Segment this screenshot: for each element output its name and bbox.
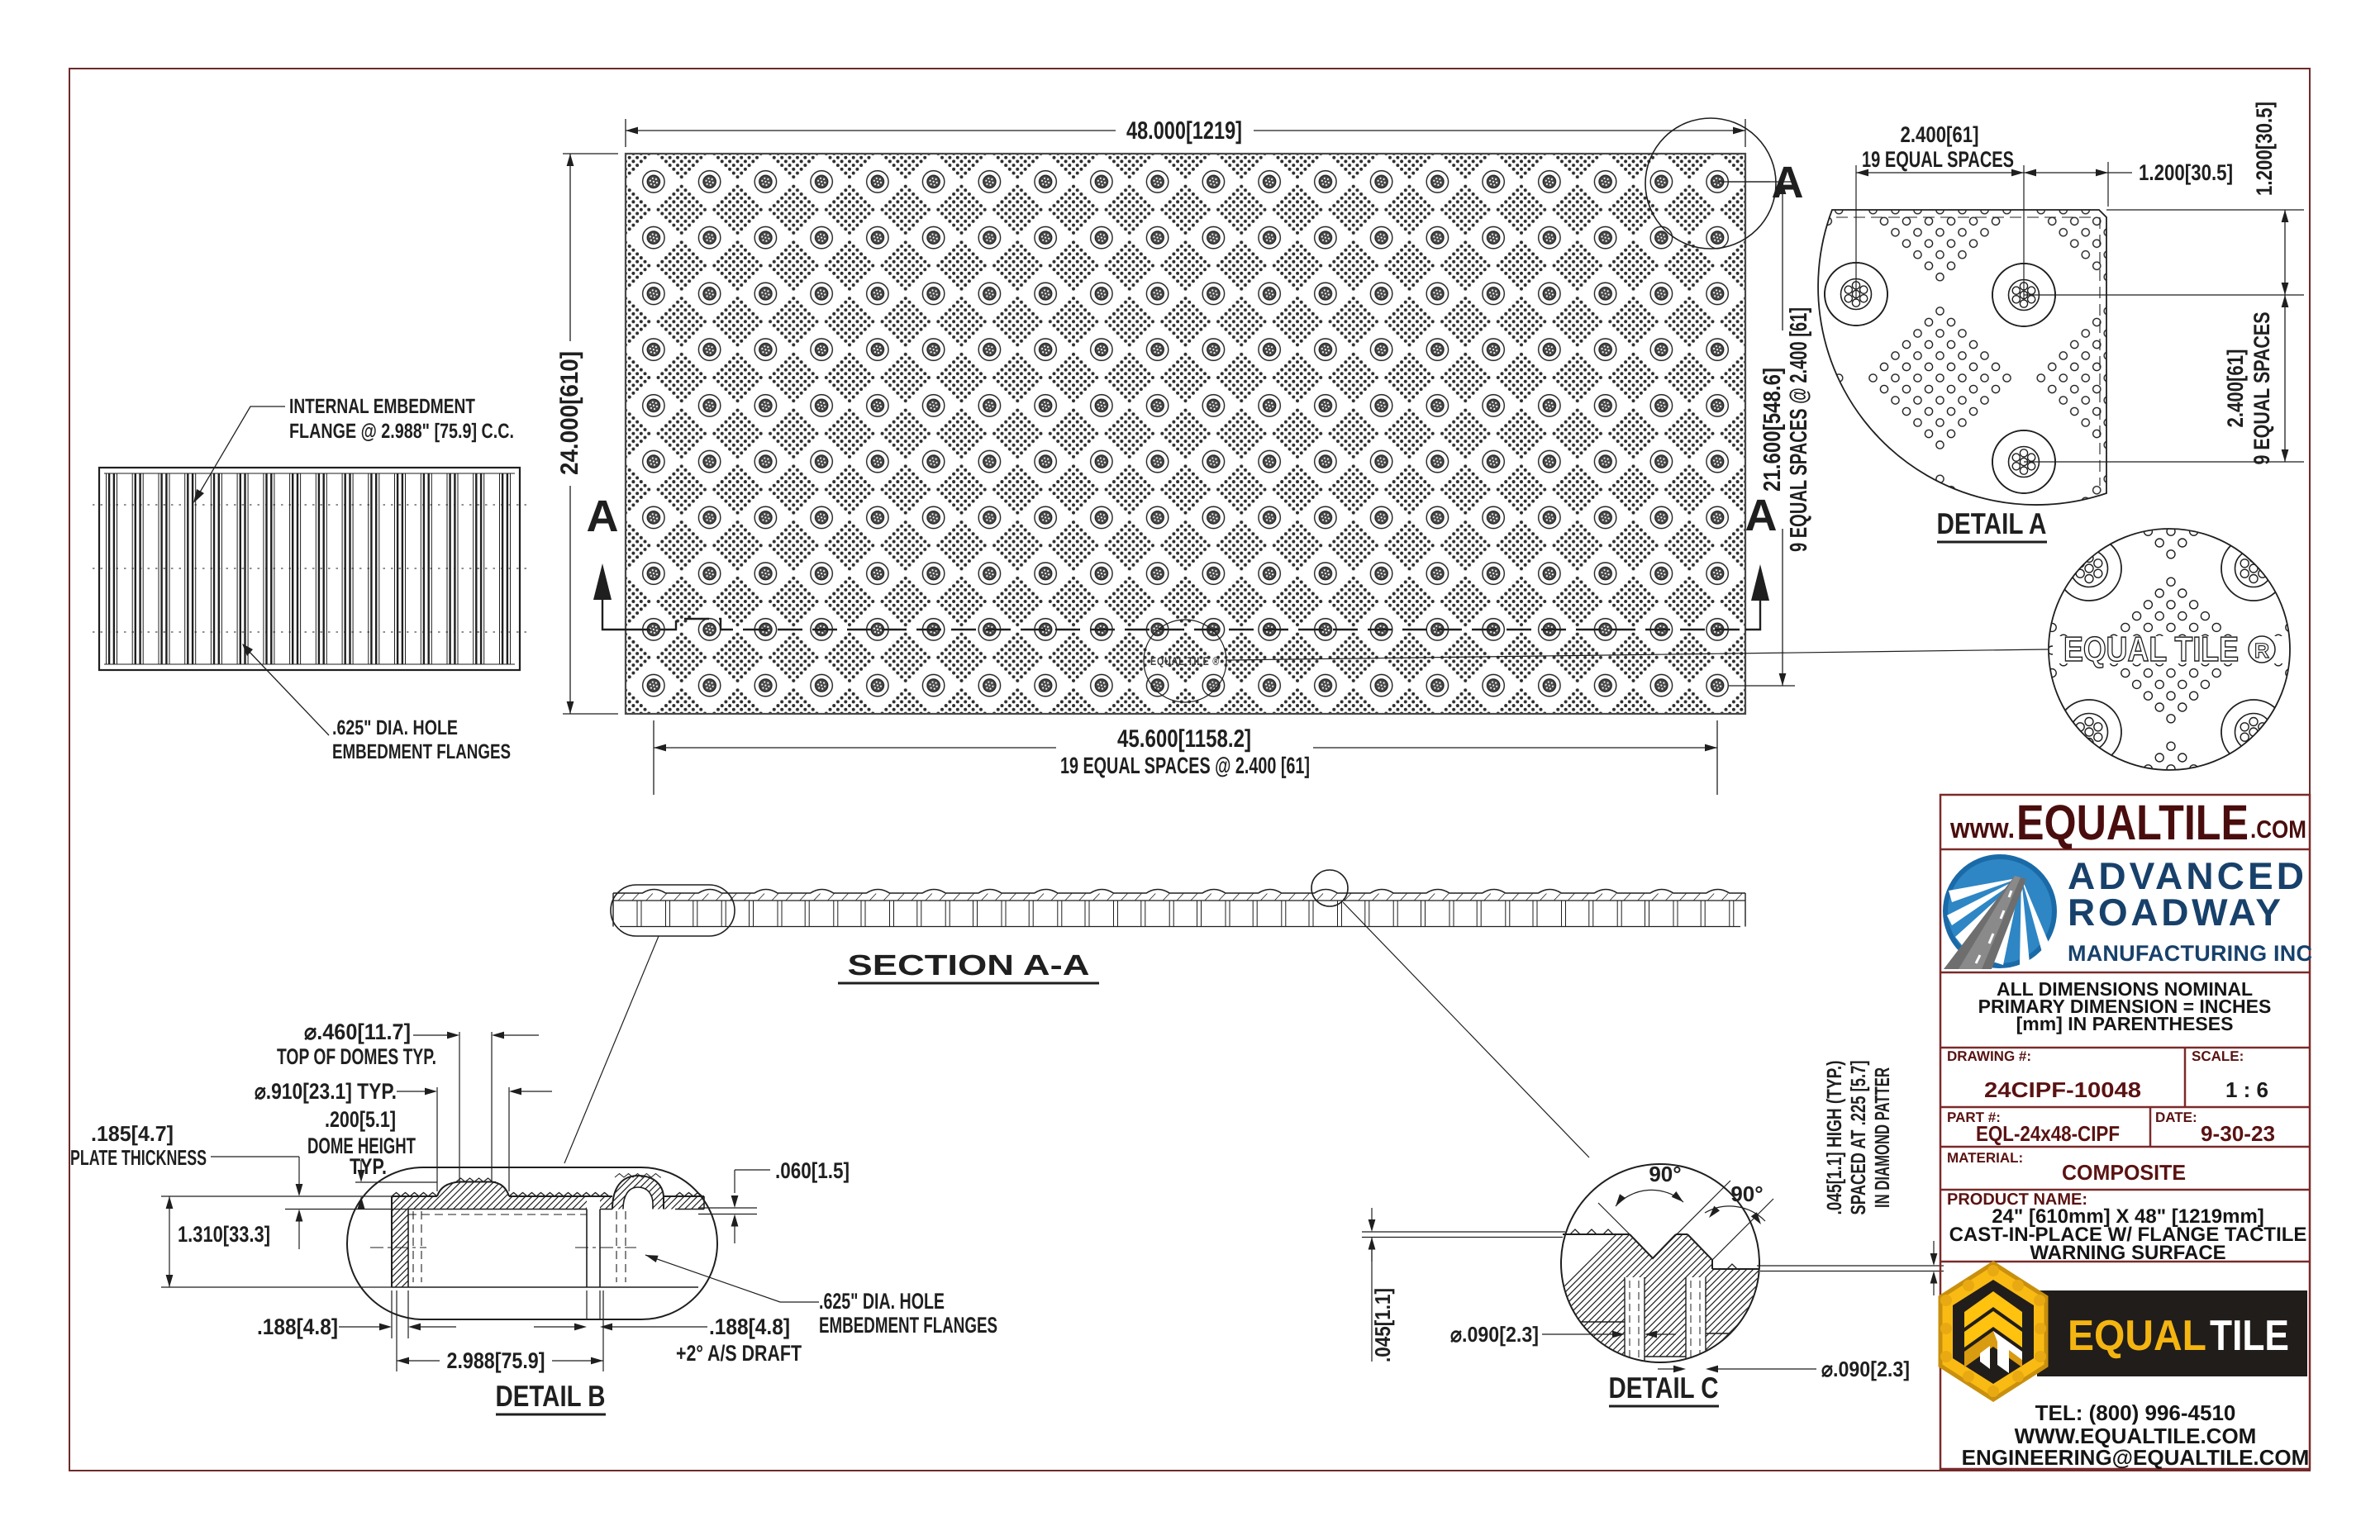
svg-text:⌀.090[2.3]: ⌀.090[2.3] <box>1821 1357 1910 1381</box>
svg-text:2.988[75.9]: 2.988[75.9] <box>447 1348 545 1373</box>
svg-text:EQUALTILE: EQUALTILE <box>2016 795 2249 850</box>
svg-text:EQUAL TILE ®: EQUAL TILE ® <box>1150 654 1220 668</box>
svg-text:48.000[1219]: 48.000[1219] <box>1126 117 1242 145</box>
svg-text:2.400[61]: 2.400[61] <box>2223 349 2248 428</box>
svg-text:DRAWING #:: DRAWING #: <box>1947 1048 2031 1064</box>
svg-text:SPACED AT .225 [5.7]: SPACED AT .225 [5.7] <box>1847 1061 1870 1215</box>
svg-text:TYP.: TYP. <box>350 1154 387 1179</box>
svg-text:.045[1.1]: .045[1.1] <box>1370 1288 1395 1362</box>
svg-text:1.310[33.3]: 1.310[33.3] <box>178 1222 270 1247</box>
svg-text:.200[5.1]: .200[5.1] <box>325 1107 396 1132</box>
svg-text:TEL: (800) 996-4510: TEL: (800) 996-4510 <box>2035 1400 2236 1425</box>
svg-text:INTERNAL EMBEDMENT: INTERNAL EMBEDMENT <box>289 395 475 418</box>
svg-text:EQL-24x48-CIPF: EQL-24x48-CIPF <box>1976 1121 2120 1146</box>
svg-text:DETAIL B: DETAIL B <box>496 1379 606 1413</box>
svg-text:90°: 90° <box>1730 1181 1763 1206</box>
svg-text:EQUAL: EQUAL <box>2068 1312 2206 1360</box>
svg-text:19 EQUAL SPACES @ 2.400 [61]: 19 EQUAL SPACES @ 2.400 [61] <box>1060 753 1310 778</box>
svg-text:A: A <box>1745 491 1778 540</box>
svg-text:2.400[61]: 2.400[61] <box>1901 122 1979 147</box>
svg-text:21.600[548.6]: 21.600[548.6] <box>1759 368 1786 492</box>
svg-text:A: A <box>587 492 619 541</box>
svg-text:.188[4.8]: .188[4.8] <box>257 1314 338 1339</box>
svg-text:1.200[30.5]: 1.200[30.5] <box>2139 160 2233 185</box>
svg-text:.188[4.8]: .188[4.8] <box>709 1314 790 1339</box>
svg-text:www.: www. <box>1949 813 2015 844</box>
svg-text:EMBEDMENT FLANGES: EMBEDMENT FLANGES <box>332 740 511 763</box>
svg-text:ROADWAY: ROADWAY <box>2068 891 2281 934</box>
svg-text:.045[1.1] HIGH (TYP.): .045[1.1] HIGH (TYP.) <box>1823 1061 1846 1215</box>
svg-text:⌀.910[23.1] TYP.: ⌀.910[23.1] TYP. <box>255 1079 397 1104</box>
svg-text:IN DIAMOND PATTER: IN DIAMOND PATTER <box>1871 1067 1894 1208</box>
svg-text:1 : 6: 1 : 6 <box>2225 1077 2268 1102</box>
svg-text:EQUAL TILE: EQUAL TILE <box>2063 630 2239 668</box>
svg-text:45.600[1158.2]: 45.600[1158.2] <box>1117 725 1251 753</box>
svg-text:TOP OF DOMES TYP.: TOP OF DOMES TYP. <box>277 1044 436 1069</box>
svg-text:DATE:: DATE: <box>2155 1110 2197 1125</box>
svg-text:A: A <box>1772 158 1804 207</box>
svg-text:⌀.090[2.3]: ⌀.090[2.3] <box>1450 1322 1539 1347</box>
svg-text:.625" DIA. HOLE: .625" DIA. HOLE <box>819 1289 945 1314</box>
svg-text:DETAIL A: DETAIL A <box>1937 506 2047 540</box>
svg-text:.185[4.7]: .185[4.7] <box>91 1121 174 1146</box>
svg-text:PLATE THICKNESS: PLATE THICKNESS <box>70 1145 207 1170</box>
svg-text:[mm] IN PARENTHESES: [mm] IN PARENTHESES <box>2016 1013 2234 1034</box>
svg-text:FLANGE @ 2.988" [75.9] C.C.: FLANGE @ 2.988" [75.9] C.C. <box>289 420 514 443</box>
svg-text:SECTION A-A: SECTION A-A <box>848 949 1090 982</box>
svg-text:9 EQUAL SPACES: 9 EQUAL SPACES <box>2249 312 2274 465</box>
svg-text:.060[1.5]: .060[1.5] <box>775 1158 850 1183</box>
svg-text:19 EQUAL SPACES: 19 EQUAL SPACES <box>1862 147 2014 172</box>
svg-text:R: R <box>2254 639 2269 663</box>
svg-text:9 EQUAL SPACES @ 2.400 [61]: 9 EQUAL SPACES @ 2.400 [61] <box>1786 307 1812 552</box>
svg-text:.COM: .COM <box>2250 816 2306 844</box>
svg-text:1.200[30.5]: 1.200[30.5] <box>2252 102 2277 196</box>
svg-text:9-30-23: 9-30-23 <box>2201 1121 2275 1146</box>
svg-text:DETAIL C: DETAIL C <box>1609 1371 1719 1405</box>
svg-text:MATERIAL:: MATERIAL: <box>1947 1150 2023 1166</box>
svg-text:ENGINEERING@EQUALTILE.COM: ENGINEERING@EQUALTILE.COM <box>1962 1445 2310 1470</box>
svg-text:+2° A/S DRAFT: +2° A/S DRAFT <box>676 1341 802 1366</box>
svg-text:24CIPF-10048: 24CIPF-10048 <box>1984 1077 2141 1102</box>
svg-text:90°: 90° <box>1649 1162 1681 1186</box>
svg-text:TILE: TILE <box>2210 1312 2289 1360</box>
svg-text:⌀.460[11.7]: ⌀.460[11.7] <box>304 1020 411 1044</box>
svg-text:SCALE:: SCALE: <box>2192 1048 2244 1064</box>
svg-text:EMBEDMENT FLANGES: EMBEDMENT FLANGES <box>819 1313 997 1338</box>
svg-text:COMPOSITE: COMPOSITE <box>2062 1160 2186 1185</box>
svg-text:MANUFACTURING INC: MANUFACTURING INC <box>2068 941 2312 966</box>
svg-text:WARNING SURFACE: WARNING SURFACE <box>2030 1242 2225 1264</box>
svg-text:.625" DIA. HOLE: .625" DIA. HOLE <box>332 716 458 739</box>
svg-text:24.000[610]: 24.000[610] <box>556 351 583 475</box>
